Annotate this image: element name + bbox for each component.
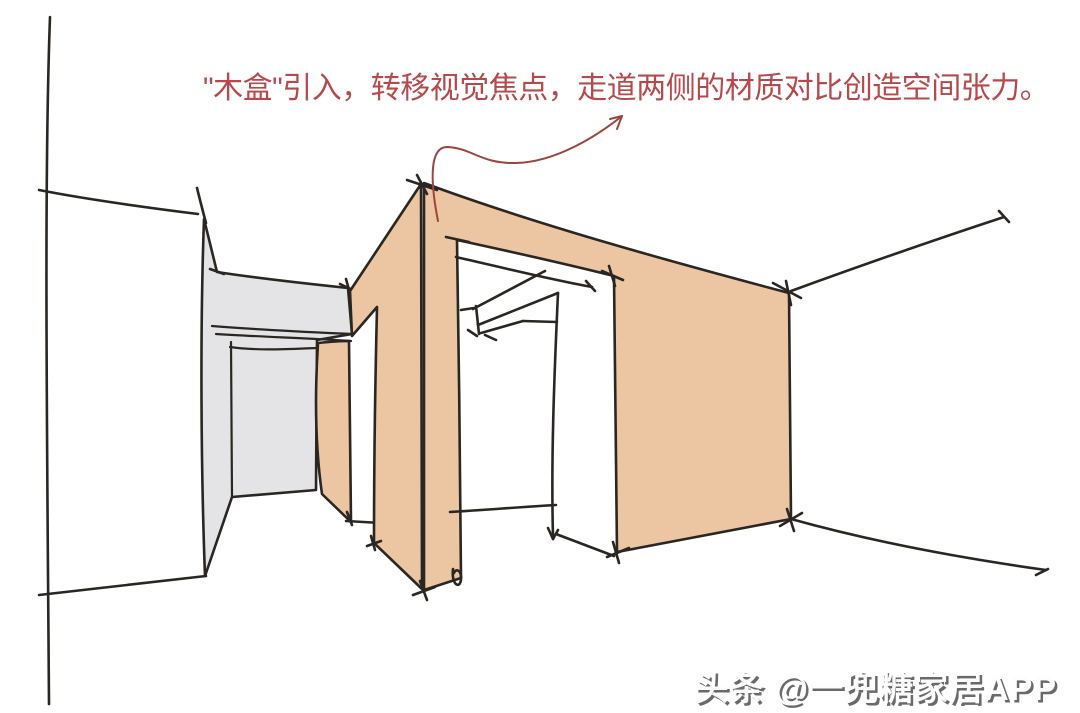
wood-box-left-face <box>350 184 422 589</box>
sketch-drawing <box>0 0 1080 713</box>
sketch-image: "木盒"引入，转移视觉焦点，走道两侧的材质对比创造空间张力。 头条 @一兜糖家居… <box>0 0 1080 713</box>
wood-box-side-panel <box>316 341 381 525</box>
floor-lines <box>791 519 1048 575</box>
doorway-opening <box>450 257 614 556</box>
watermark-text: 头条 @一兜糖家居APP <box>694 661 1057 710</box>
right-wall-line <box>791 211 1009 291</box>
wood-box-front-face <box>407 175 802 600</box>
left-wall-lines <box>39 17 206 704</box>
annotation-text: "木盒"引入，转移视觉焦点，走道两侧的材质对比创造空间张力。 <box>203 72 1043 106</box>
